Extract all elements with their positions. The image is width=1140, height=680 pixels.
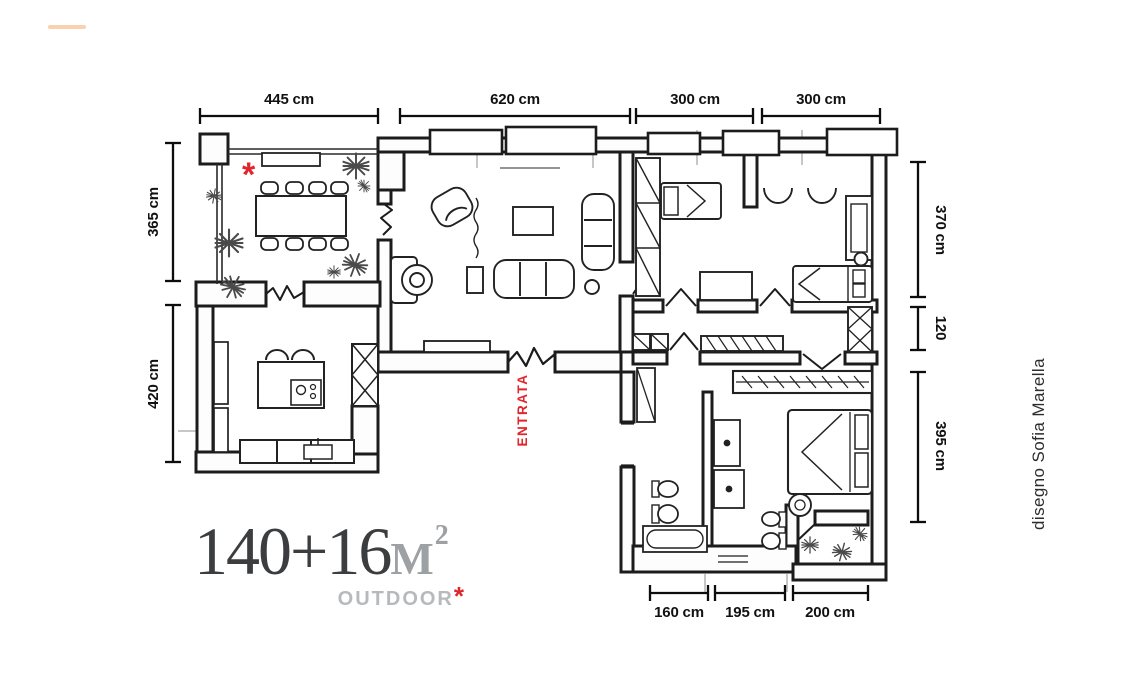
entrance-label: ENTRATA — [515, 374, 530, 447]
dim-bottom-1: 160 cm — [654, 604, 704, 621]
dim-right-1: 370 cm — [932, 205, 949, 255]
dim-bottom-3: 200 cm — [805, 604, 855, 621]
dim-left-2: 420 cm — [145, 359, 162, 409]
dim-top-1: 445 cm — [264, 91, 314, 108]
designer-credit: disegno Sofia Marella — [1029, 358, 1048, 530]
outdoor-asterisk: * — [454, 581, 464, 611]
terrace-asterisk: * — [242, 156, 256, 194]
floor-plan-page: 445 cm 620 cm 300 cm 300 cm 365 cm 420 c… — [0, 0, 1140, 680]
living-furniture — [391, 168, 614, 303]
area-unit-exponent: 2 — [435, 520, 449, 551]
area-unit: M — [390, 533, 433, 584]
dim-top-4: 300 cm — [796, 91, 846, 108]
dim-left-1: 365 cm — [145, 187, 162, 237]
floor-plan-svg: 445 cm 620 cm 300 cm 300 cm 365 cm 420 c… — [0, 0, 1140, 680]
dim-right-3: 395 cm — [932, 421, 949, 471]
terrace-furniture — [256, 153, 348, 250]
area-title: 140+16M2 — [194, 512, 466, 591]
title-block: 140+16M2 OUTDOOR* — [194, 512, 466, 612]
area-value: 140+16 — [194, 513, 390, 589]
kitchen-furniture — [214, 342, 378, 463]
dim-bottom-2: 195 cm — [725, 604, 775, 621]
outdoor-label: OUTDOOR — [338, 588, 454, 610]
dim-top-2: 620 cm — [490, 91, 540, 108]
dim-top-3: 300 cm — [670, 91, 720, 108]
bedroom-furniture — [633, 158, 872, 516]
dim-right-2: 120 — [932, 316, 949, 340]
